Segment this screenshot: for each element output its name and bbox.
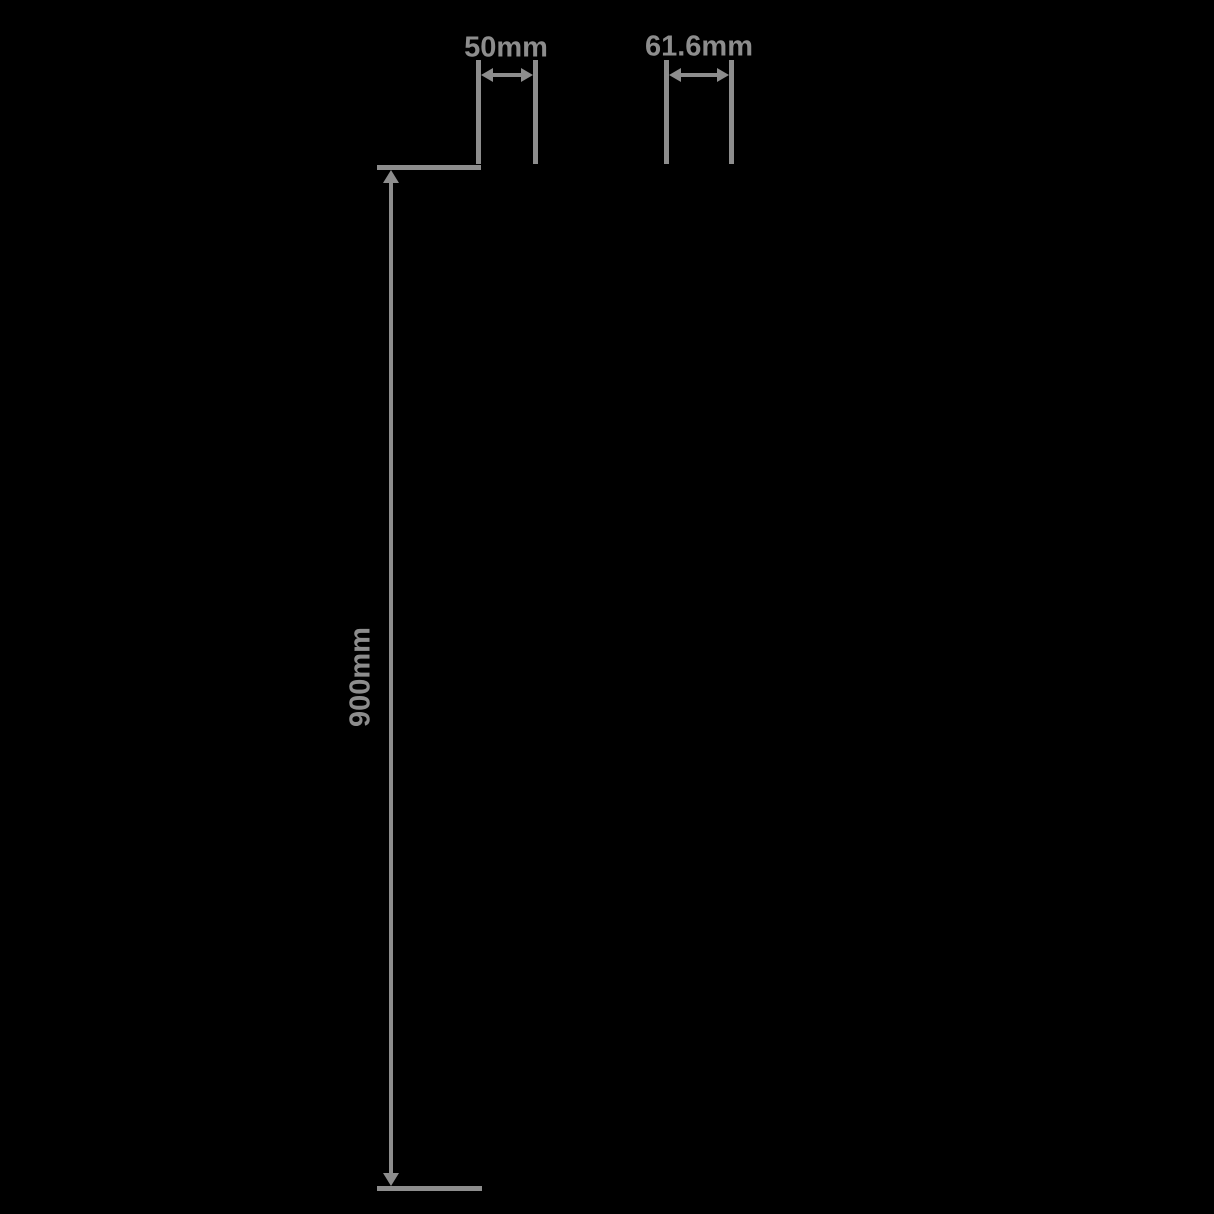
vertical-dimension-arrow-down-icon (383, 1173, 399, 1186)
top-right-dimension-label: 61.6mm (645, 31, 753, 64)
dimension-arrow-right-icon (717, 68, 729, 82)
dimension-arrow-right-icon (521, 68, 533, 82)
dimension-diagram: 900mm 50mm 61.6mm (0, 0, 1214, 1214)
bottom-reference-line (377, 1186, 482, 1191)
right-extension-line (729, 60, 734, 164)
vertical-dimension-label: 900mm (345, 627, 378, 727)
vertical-dimension-line (389, 182, 393, 1173)
dimension-shaft (491, 73, 523, 77)
top-left-dimension-label: 50mm (464, 32, 548, 65)
right-extension-line (533, 60, 538, 164)
dimension-shaft (679, 73, 719, 77)
